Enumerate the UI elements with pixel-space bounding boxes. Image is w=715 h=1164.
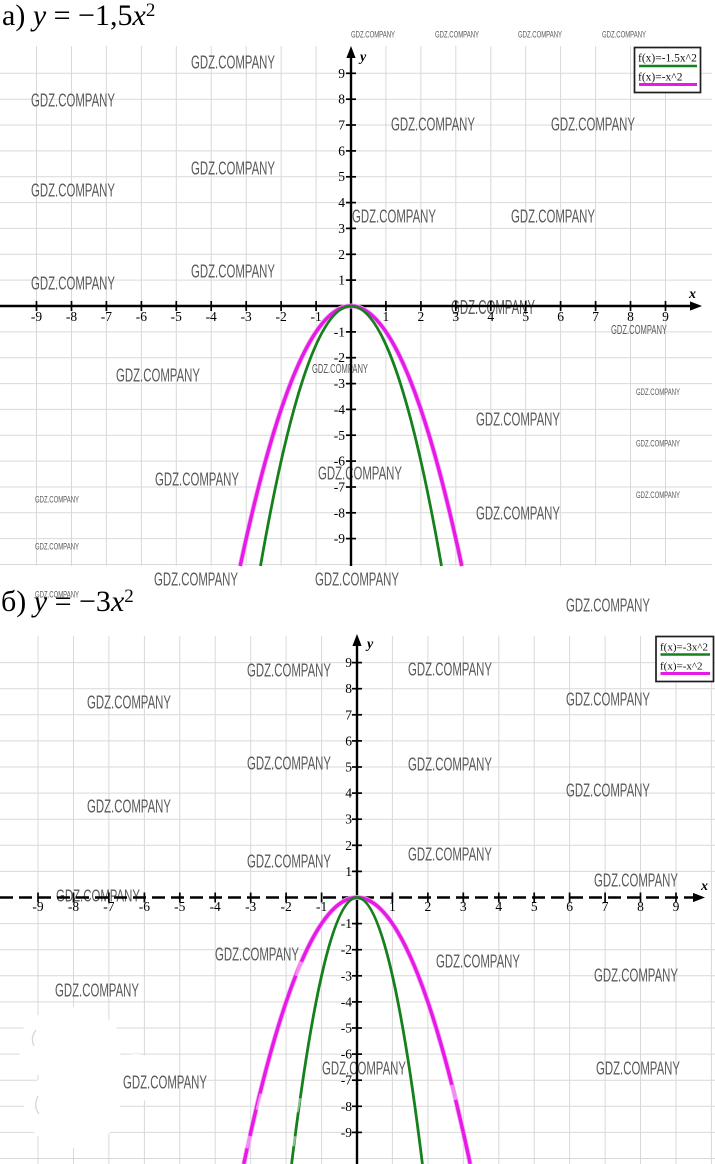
svg-text:9: 9 <box>345 655 352 670</box>
svg-text:-1: -1 <box>341 916 352 931</box>
svg-text:8: 8 <box>338 92 345 107</box>
svg-text:-7: -7 <box>101 309 112 324</box>
svg-text:-5: -5 <box>171 309 182 324</box>
svg-text:6: 6 <box>338 143 345 158</box>
svg-text:-9: -9 <box>32 899 43 914</box>
svg-text:-3: -3 <box>341 968 352 983</box>
svg-text:GDZ.COMPANY: GDZ.COMPANY <box>636 439 680 449</box>
svg-text:7: 7 <box>338 118 345 133</box>
svg-text:GDZ.COMPANY: GDZ.COMPANY <box>351 30 395 40</box>
svg-text:-8: -8 <box>334 505 345 520</box>
svg-text:-2: -2 <box>275 309 286 324</box>
svg-text:GDZ.COMPANY: GDZ.COMPANY <box>408 754 492 775</box>
svg-text:5: 5 <box>338 169 345 184</box>
svg-text:-9: -9 <box>341 1125 352 1140</box>
svg-text:-9: -9 <box>334 531 345 546</box>
svg-text:GDZ.COMPANY: GDZ.COMPANY <box>55 980 139 1001</box>
svg-text:GDZ.COMPANY: GDZ.COMPANY <box>318 463 402 484</box>
svg-text:GDZ.COMPANY: GDZ.COMPANY <box>116 365 200 386</box>
svg-text:GDZ.COMPANY: GDZ.COMPANY <box>31 180 115 201</box>
svg-text:8: 8 <box>627 309 634 324</box>
svg-text:GDZ.COMPANY: GDZ.COMPANY <box>636 387 680 397</box>
svg-text:GDZ.COMPANY: GDZ.COMPANY <box>566 689 650 710</box>
svg-text:-1: -1 <box>316 899 327 914</box>
svg-text:-5: -5 <box>334 428 345 443</box>
svg-text:GDZ.COMPANY: GDZ.COMPANY <box>191 52 275 73</box>
svg-text:-2: -2 <box>341 942 352 957</box>
svg-text:GDZ.COMPANY: GDZ.COMPANY <box>247 851 331 872</box>
svg-text:GDZ.COMPANY: GDZ.COMPANY <box>322 1058 406 1079</box>
svg-text:5: 5 <box>522 309 529 324</box>
svg-text:GDZ.COMPANY: GDZ.COMPANY <box>611 323 667 337</box>
svg-text:GDZ.COMPANY: GDZ.COMPANY <box>566 780 650 801</box>
svg-text:8: 8 <box>345 681 352 696</box>
svg-text:-7: -7 <box>334 480 345 495</box>
svg-text:2: 2 <box>345 838 352 853</box>
svg-text:4: 4 <box>495 899 502 914</box>
svg-text:1: 1 <box>338 273 345 288</box>
svg-text:GDZ.COMPANY: GDZ.COMPANY <box>315 569 399 590</box>
svg-text:-8: -8 <box>341 1099 352 1114</box>
svg-text:GDZ.COMPANY: GDZ.COMPANY <box>476 409 560 430</box>
svg-text:-3: -3 <box>334 376 345 391</box>
svg-text:7: 7 <box>602 899 609 914</box>
svg-text:GDZ.COMPANY: GDZ.COMPANY <box>35 590 79 600</box>
svg-text:-5: -5 <box>174 899 185 914</box>
svg-text:3: 3 <box>460 899 467 914</box>
svg-text:3: 3 <box>452 309 459 324</box>
svg-text:f(x)=-x^2: f(x)=-x^2 <box>638 72 683 84</box>
svg-text:-4: -4 <box>341 994 352 1009</box>
svg-text:-2: -2 <box>334 350 345 365</box>
svg-text:-5: -5 <box>341 1021 352 1036</box>
svg-text:3: 3 <box>338 221 345 236</box>
svg-text:GDZ.COMPANY: GDZ.COMPANY <box>87 796 171 817</box>
svg-text:9: 9 <box>673 899 680 914</box>
svg-text:GDZ.COMPANY: GDZ.COMPANY <box>215 944 299 965</box>
svg-text:4: 4 <box>487 309 494 324</box>
svg-text:GDZ.COMPANY: GDZ.COMPANY <box>155 469 239 490</box>
svg-text:2: 2 <box>338 247 345 262</box>
svg-text:5: 5 <box>531 899 538 914</box>
svg-text:GDZ.COMPANY: GDZ.COMPANY <box>408 844 492 865</box>
svg-text:6: 6 <box>566 899 573 914</box>
svg-text:GDZ.COMPANY: GDZ.COMPANY <box>518 30 562 40</box>
svg-text:x: x <box>688 287 696 302</box>
svg-text:4: 4 <box>345 786 352 801</box>
svg-text:-6: -6 <box>139 899 150 914</box>
svg-text:-6: -6 <box>341 1047 352 1062</box>
svg-text:-8: -8 <box>66 309 77 324</box>
svg-text:1: 1 <box>383 309 390 324</box>
svg-text:GDZ.COMPANY: GDZ.COMPANY <box>191 261 275 282</box>
svg-text:6: 6 <box>345 733 352 748</box>
svg-text:-2: -2 <box>280 899 291 914</box>
svg-text:7: 7 <box>592 309 599 324</box>
svg-text:GDZ.COMPANY: GDZ.COMPANY <box>352 206 436 227</box>
svg-text:GDZ.COMPANY: GDZ.COMPANY <box>391 114 475 135</box>
svg-text:GDZ.COMPANY: GDZ.COMPANY <box>476 503 560 524</box>
svg-text:y: y <box>365 637 374 652</box>
svg-text:4: 4 <box>338 195 345 210</box>
svg-text:f(x)=-x^2: f(x)=-x^2 <box>660 661 703 673</box>
svg-text:GDZ.COMPANY: GDZ.COMPANY <box>87 692 171 713</box>
svg-text:2: 2 <box>418 309 425 324</box>
svg-text:GDZ.COMPANY: GDZ.COMPANY <box>191 158 275 179</box>
svg-text:GDZ.COMPANY: GDZ.COMPANY <box>636 490 680 500</box>
svg-text:GDZ.COMPANY: GDZ.COMPANY <box>594 965 678 986</box>
svg-text:GDZ.COMPANY: GDZ.COMPANY <box>436 951 520 972</box>
svg-text:5: 5 <box>345 760 352 775</box>
svg-text:GDZ.COMPANY: GDZ.COMPANY <box>154 569 238 590</box>
svg-text:-3: -3 <box>241 309 252 324</box>
svg-text:7: 7 <box>345 707 352 722</box>
svg-text:GDZ.COMPANY: GDZ.COMPANY <box>435 30 479 40</box>
svg-text:-6: -6 <box>136 309 147 324</box>
svg-text:GDZ.COMPANY: GDZ.COMPANY <box>31 90 115 111</box>
svg-text:GDZ.COMPANY: GDZ.COMPANY <box>247 660 331 681</box>
svg-text:-1: -1 <box>310 309 321 324</box>
svg-text:-8: -8 <box>68 899 79 914</box>
svg-text:-4: -4 <box>334 402 345 417</box>
svg-text:GDZ.COMPANY: GDZ.COMPANY <box>31 273 115 294</box>
svg-text:GDZ.COMPANY: GDZ.COMPANY <box>511 206 595 227</box>
svg-text:GDZ.COMPANY: GDZ.COMPANY <box>123 1072 207 1093</box>
svg-text:-3: -3 <box>245 899 256 914</box>
svg-text:x: x <box>700 879 708 894</box>
svg-text:f(x)=-1.5x^2: f(x)=-1.5x^2 <box>638 53 697 65</box>
svg-text:-9: -9 <box>31 309 42 324</box>
svg-text:-1: -1 <box>334 324 345 339</box>
svg-text:-6: -6 <box>334 454 345 469</box>
svg-text:GDZ.COMPANY: GDZ.COMPANY <box>35 542 79 552</box>
svg-text:8: 8 <box>637 899 644 914</box>
svg-text:GDZ.COMPANY: GDZ.COMPANY <box>566 595 650 616</box>
svg-text:GDZ.COMPANY: GDZ.COMPANY <box>596 1058 680 1079</box>
svg-text:GDZ.COMPANY: GDZ.COMPANY <box>247 753 331 774</box>
svg-text:y: y <box>358 50 367 65</box>
svg-text:GDZ.COMPANY: GDZ.COMPANY <box>35 495 79 505</box>
svg-text:2: 2 <box>425 899 432 914</box>
svg-text:-7: -7 <box>103 899 114 914</box>
svg-text:GDZ.COMPANY: GDZ.COMPANY <box>551 114 635 135</box>
svg-text:-7: -7 <box>341 1073 352 1088</box>
svg-text:9: 9 <box>662 309 669 324</box>
svg-text:1: 1 <box>345 864 352 879</box>
svg-text:f(x)=-3x^2: f(x)=-3x^2 <box>660 642 708 654</box>
svg-text:1: 1 <box>389 899 396 914</box>
svg-text:GDZ.COMPANY: GDZ.COMPANY <box>594 870 678 891</box>
svg-text:-4: -4 <box>206 309 217 324</box>
svg-text:GDZ.COMPANY: GDZ.COMPANY <box>408 659 492 680</box>
svg-text:-4: -4 <box>210 899 221 914</box>
svg-text:6: 6 <box>557 309 564 324</box>
svg-text:GDZ.COMPANY: GDZ.COMPANY <box>602 30 646 40</box>
svg-text:9: 9 <box>338 66 345 81</box>
svg-text:3: 3 <box>345 812 352 827</box>
